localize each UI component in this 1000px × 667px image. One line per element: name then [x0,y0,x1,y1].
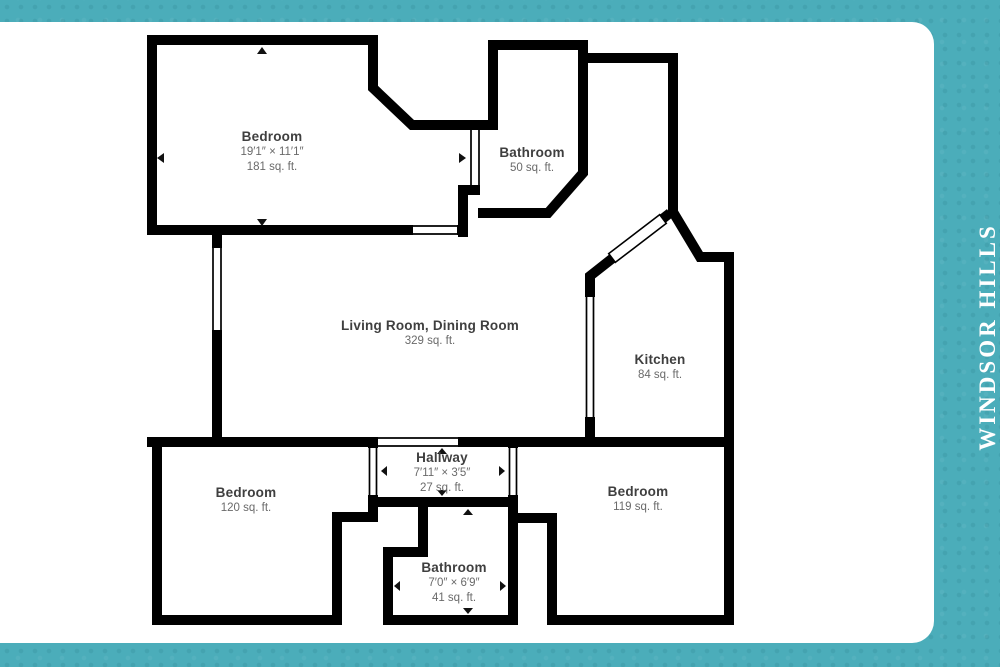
room-label-bedroom-3: Bedroom 119 sq. ft. [608,483,669,515]
room-dimensions: 7′0″ × 6′9″ [421,576,486,591]
room-label-bathroom-2: Bathroom 7′0″ × 6′9″ 41 sq. ft. [421,559,486,606]
room-name: Kitchen [635,351,686,368]
room-dimensions: 19′1″ × 11′1″ [240,145,303,160]
dimension-arrow [463,608,473,614]
room-dimensions: 7′11″ × 3′5″ [414,466,471,481]
room-area: 41 sq. ft. [421,591,486,606]
room-area: 119 sq. ft. [608,500,669,515]
room-name: Living Room, Dining Room [341,317,519,334]
room-label-bathroom-1: Bathroom 50 sq. ft. [499,144,564,176]
teal-frame-background: Bedroom 19′1″ × 11′1″ 181 sq. ft. Bathro… [0,0,1000,667]
room-name: Bathroom [499,144,564,161]
wall-bedroom1-outline [152,40,493,235]
room-name: Bedroom [240,128,303,145]
dimension-arrow [500,581,506,591]
window-bedroom1-right [471,130,479,185]
dimension-arrow [157,153,164,163]
room-name: Bathroom [421,559,486,576]
dimension-arrow [459,153,466,163]
room-area: 120 sq. ft. [216,501,277,516]
dimension-arrow [499,466,505,476]
room-area: 27 sq. ft. [414,481,471,496]
room-name: Bedroom [608,483,669,500]
wall-right-wing-outline [493,45,729,620]
room-label-hallway: Hallway 7′11″ × 3′5″ 27 sq. ft. [414,449,471,496]
room-label-living-dining: Living Room, Dining Room 329 sq. ft. [341,317,519,349]
room-label-kitchen: Kitchen 84 sq. ft. [635,351,686,383]
wall-bedroom1-right-jog [458,190,480,237]
room-label-bedroom-1: Bedroom 19′1″ × 11′1″ 181 sq. ft. [240,128,303,175]
room-area: 181 sq. ft. [240,160,303,175]
room-label-bedroom-2: Bedroom 120 sq. ft. [216,484,277,516]
dimension-arrow [381,466,387,476]
dimension-arrow [257,219,267,226]
room-name: Bedroom [216,484,277,501]
room-area: 329 sq. ft. [341,334,519,349]
dimension-arrow [257,47,267,54]
dimension-arrow [463,509,473,515]
room-area: 50 sq. ft. [499,161,564,176]
community-name-vertical-text: WINDSOR HILLS [975,223,1000,451]
wall-bathroom2-left [388,507,423,625]
room-name: Hallway [414,449,471,466]
wall-bedroom2-outline [157,437,373,620]
room-area: 84 sq. ft. [635,368,686,383]
dimension-arrow [394,581,400,591]
door-kitchen-diagonal [609,215,667,263]
